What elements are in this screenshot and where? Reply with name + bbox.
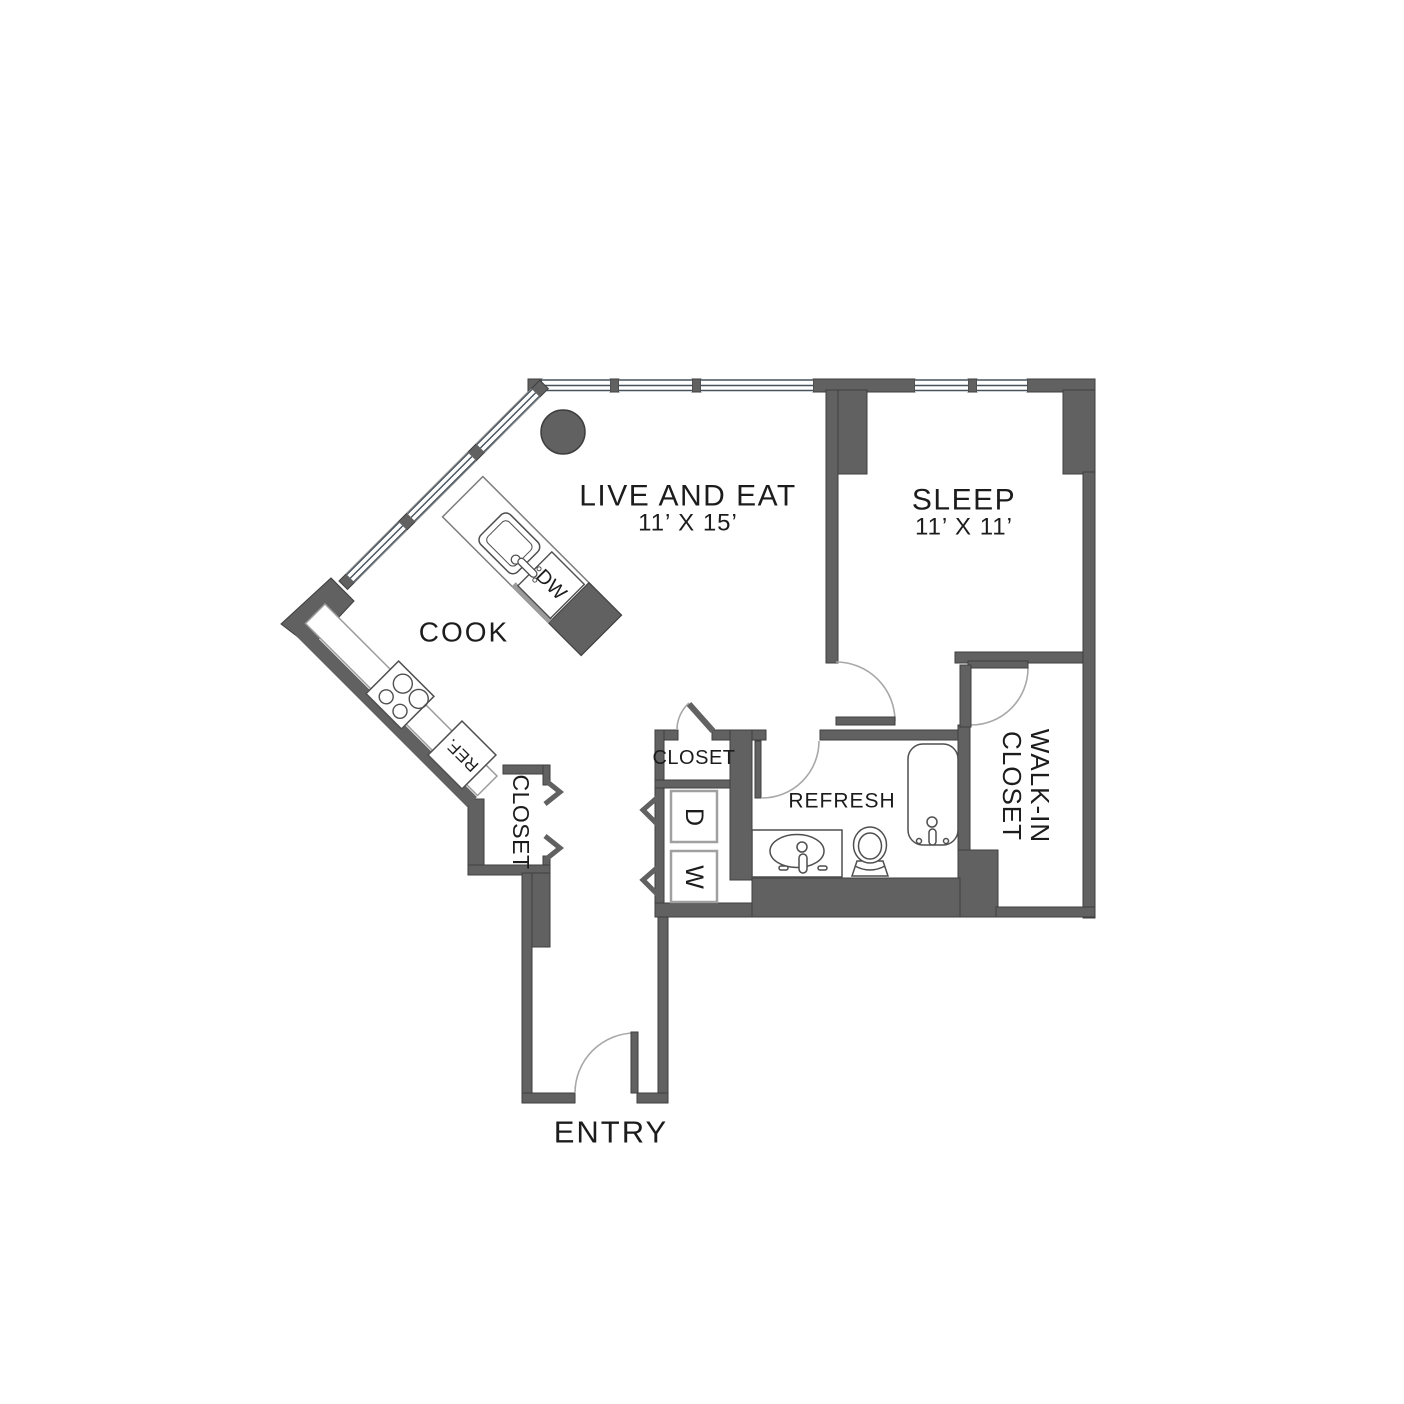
toilet — [852, 827, 888, 876]
room-label-walk-in-line2: CLOSET — [997, 731, 1027, 841]
door-leaf-wic-top — [968, 661, 1028, 668]
wall-top-mullion-2 — [692, 379, 701, 392]
wall-entry-bottom-left — [522, 1093, 575, 1103]
door-leaf-hall-closet — [689, 704, 713, 731]
room-label-entry: ENTRY — [554, 1115, 669, 1150]
laundry: D W — [671, 791, 717, 902]
wall-bath-wic-block — [958, 850, 998, 917]
bathtub — [908, 744, 958, 845]
chevron-entry-closet-bottom — [545, 836, 560, 860]
room-label-hall-closet: CLOSET — [652, 747, 735, 769]
wall-bedroom-divider — [826, 390, 838, 663]
faucet-icon — [929, 829, 936, 845]
vanity-sink — [752, 830, 842, 877]
door-arc-hall-closet — [677, 703, 689, 730]
door-leaf-entry — [631, 1032, 638, 1093]
wall-corridor-left — [522, 873, 532, 1103]
floor-plan-canvas: REF. DW — [0, 0, 1404, 1404]
door-leaf-bathroom — [755, 741, 761, 798]
wall-laundry-bottom — [655, 903, 752, 917]
wall-diagonal-kitchen — [300, 630, 472, 802]
table-icon — [541, 410, 585, 454]
room-label-sleep: SLEEP — [912, 484, 1016, 517]
faucet-icon — [927, 817, 937, 827]
wall-corridor-right — [658, 917, 668, 1103]
washer-label: W — [680, 865, 708, 889]
wall-south-right — [996, 907, 1095, 917]
room-label-cook: COOK — [419, 617, 509, 648]
wall-entrycloset-left — [468, 799, 484, 875]
wall-right-outer — [1083, 472, 1095, 918]
door-arc-entry — [575, 1033, 635, 1093]
wall-top-mullion-1 — [610, 379, 619, 392]
wall-bath-wic — [958, 725, 970, 855]
faucet-icon — [797, 842, 807, 852]
room-label-walk-in-line1: WALK-IN — [1025, 729, 1055, 843]
wall-bath-north-left-stub — [752, 730, 766, 740]
door-leaf-bedroom — [836, 717, 895, 725]
door-arc-wic — [971, 668, 1028, 725]
wall-bath-south — [752, 878, 960, 917]
door-leaf-wic — [960, 665, 971, 727]
closet-door-chevrons — [545, 780, 659, 896]
chevron-entry-closet-top — [545, 780, 560, 804]
faucet-icon — [799, 854, 807, 873]
room-label-entry-closet: CLOSET — [508, 774, 534, 869]
room-dims-sleep: 11’ X 11’ — [915, 514, 1013, 541]
room-dims-live-and-eat: 11’ X 15’ — [638, 510, 738, 537]
wall-entry-bottom-right — [637, 1093, 668, 1103]
floor-plan-svg: REF. DW — [0, 0, 1404, 1404]
wall-top-mullion-3 — [968, 379, 977, 392]
dryer-label: D — [680, 808, 708, 826]
wall-laundry-divider — [655, 780, 730, 788]
room-label-refresh: REFRESH — [788, 790, 895, 813]
door-arc-bedroom — [836, 662, 895, 721]
wall-top-right-block — [1063, 390, 1095, 474]
room-label-live-and-eat: LIVE AND EAT — [579, 480, 797, 513]
wall-bath-north — [820, 730, 965, 740]
